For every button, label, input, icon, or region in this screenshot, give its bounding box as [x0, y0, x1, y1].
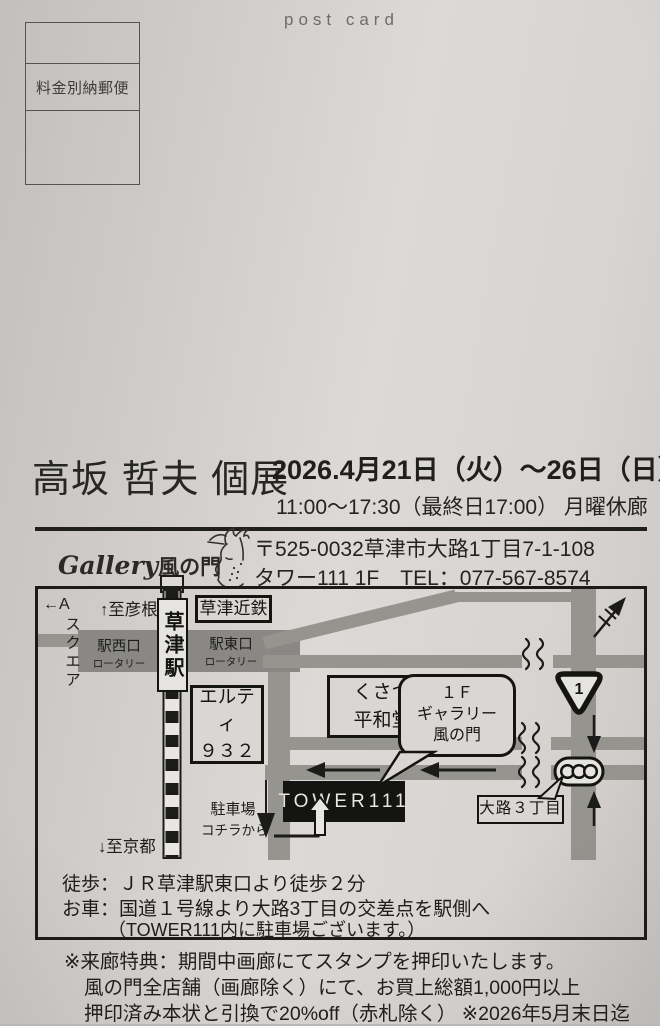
west-exit-label: 駅西口 ロータリー [88, 635, 150, 671]
tower-entrance-arrow-icon [303, 794, 339, 838]
exhibition-title: 高坂 哲夫 個展 [32, 448, 289, 503]
note-line2: 風の門全店舗（画廊除く）にて、お買上総額1,000円以上 [84, 971, 580, 1000]
note-line3: 押印済み本状と引換で20%off（赤札除く） ※2026年5月末日迄 [84, 997, 630, 1026]
postage-stamp-box: 料金別納郵便 [25, 22, 140, 185]
access-car-line2: （TOWER111内に駐車場ございます。） [108, 916, 425, 942]
divider-rule [35, 527, 647, 531]
access-walk: 徒歩：ＪＲ草津駅東口より徒歩２分 [62, 869, 366, 896]
bubble-line3: 風の門 [433, 726, 481, 747]
a-square-arrow-label: ←A [43, 596, 70, 614]
parking-line2: コチラから [201, 819, 265, 839]
exhibition-dates: 2026.4月21日（火）～26日（日） [272, 448, 660, 487]
parking-label: 駐車場 コチラから [201, 798, 265, 839]
to-hikone-label: ↑至彦根 [100, 596, 158, 620]
kusatsu-kintetsu-box: 草津近鉄 [195, 595, 272, 623]
east-exit-sub: ロータリー [202, 654, 260, 669]
west-exit-sub: ロータリー [88, 656, 150, 671]
east-exit-name: 駅東口 [202, 633, 260, 654]
postage-stamp-box-top [26, 23, 139, 64]
to-kyoto-label: ↓至京都 [98, 833, 156, 857]
elty932-box: エルティ ９３２ [190, 685, 264, 764]
gallery-location-bubble: １Ｆ ギャラリー 風の門 [398, 674, 516, 757]
oji-callout-tail [530, 773, 572, 801]
bubble-tail [371, 749, 451, 791]
road-break-marks [519, 639, 543, 787]
postcard: post card 料金別納郵便 高坂 哲夫 個展 2026.4月21日（火）～… [0, 0, 660, 1024]
kusatsu-station-box: 草津駅 [157, 598, 188, 692]
access-map: 1 ←A スクエア ↑至彦根 ↓至京都 駅西口 ロータリー 駅東口 ロータリー … [35, 586, 647, 940]
diagonal-road [264, 596, 456, 643]
a-square-label: スクエア [60, 616, 82, 690]
postcard-label: post card [284, 10, 399, 30]
exhibition-hours: 11:00～17:30（最終日17:00） 月曜休廊 [276, 491, 648, 521]
elty932-line2: ９３２ [199, 738, 255, 765]
elty932-line1: エルティ [193, 684, 261, 738]
route-1-number: 1 [575, 681, 584, 698]
gallery-logo-script: Gallery [58, 551, 158, 580]
east-exit-label: 駅東口 ロータリー [202, 633, 260, 669]
west-exit-name: 駅西口 [88, 635, 150, 656]
note-line1: ※来廊特典：期間中画廊にてスタンプを押印いたします。 [64, 945, 565, 974]
gallery-address: 〒525-0032草津市大路1丁目7-1-108 [254, 533, 595, 563]
north-arrow-icon [594, 597, 626, 637]
bubble-line1: １Ｆ [441, 684, 473, 705]
gallery-face-logo-icon [196, 524, 250, 590]
parking-line1: 駐車場 [201, 798, 265, 819]
bubble-line2: ギャラリー [417, 705, 497, 726]
postage-label: 料金別納郵便 [26, 64, 139, 111]
